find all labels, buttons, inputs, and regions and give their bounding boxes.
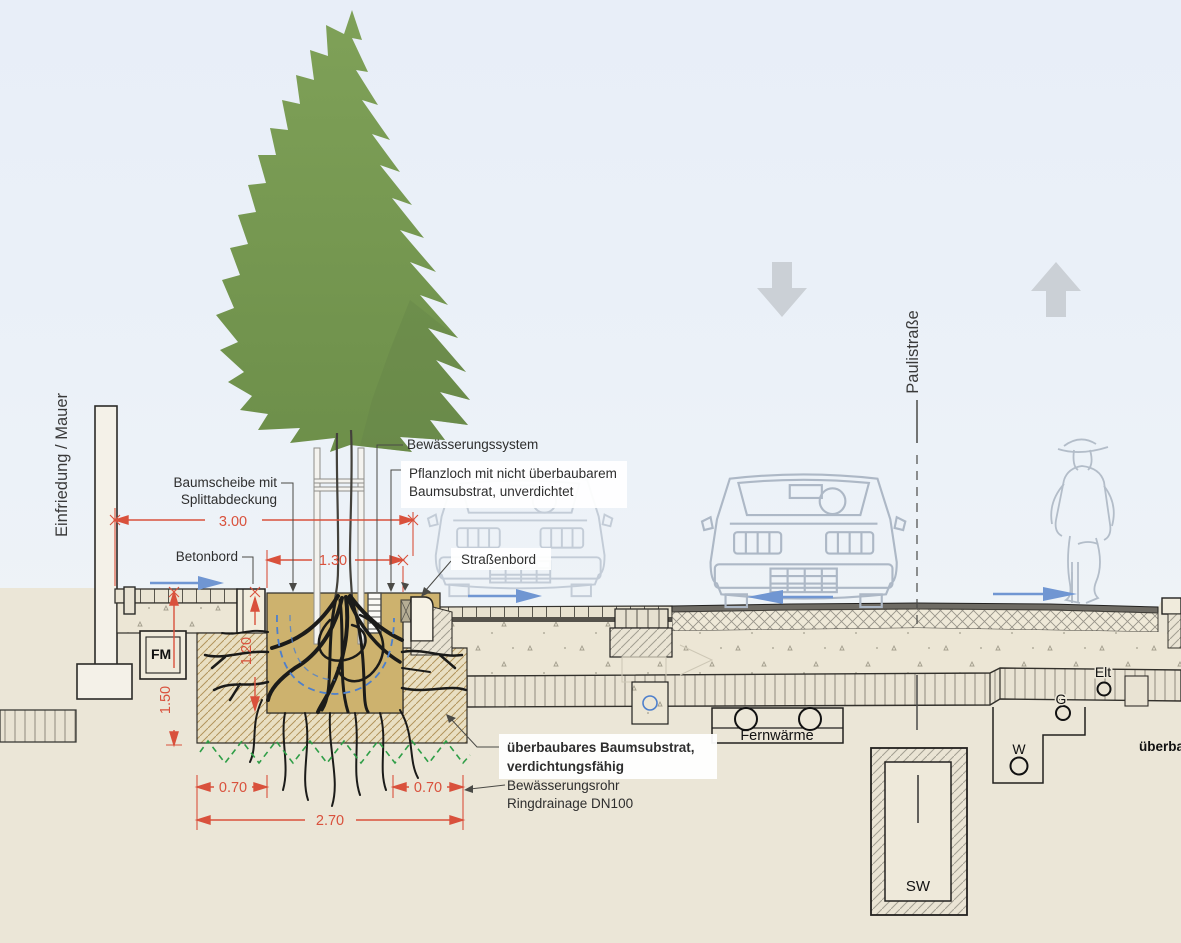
pflanzloch-label-line2: Baumsubstrat, unverdichtet [409, 484, 574, 499]
dim-depth-pit: 1.20 [239, 637, 255, 665]
fernwaerme-label: Fernwärme [740, 728, 813, 744]
dim-substrate-width: 2.70 [316, 813, 344, 829]
w-label: W [1012, 741, 1026, 757]
heating-pipe-right [799, 708, 821, 730]
baumscheibe-label-line2: Splittabdeckung [181, 492, 277, 507]
heating-pipe-left [735, 708, 757, 730]
dim-offset-right: 0.70 [414, 780, 442, 796]
drainage-label-line2: Ringdrainage DN100 [507, 796, 633, 811]
betonbord-label: Betonbord [176, 549, 238, 564]
street-cross-section-diagram: FM Fernwärme W G Elt SW überba [0, 0, 1181, 943]
dim-total-width: 3.00 [219, 514, 247, 530]
irrigation-system-label: Bewässerungssystem [407, 437, 538, 452]
left-utility-duct-strip [0, 710, 76, 742]
diagram-canvas: FM Fernwärme W G Elt SW überba [0, 0, 1181, 943]
baumscheibe-label-line1: Baumscheibe mit [173, 475, 277, 490]
dim-offset-left: 0.70 [219, 780, 247, 796]
sky-background [0, 0, 1181, 620]
g-label: G [1056, 691, 1067, 707]
street-name-label: Paulistraße [904, 310, 922, 393]
pipe-shaft [632, 682, 668, 724]
ueberbaubar-label-line1: überbaubares Baumsubstrat, [507, 740, 695, 755]
ueberbaubar-label: überbaubares Baumsubstrat, verdichtungsf… [499, 734, 717, 779]
dim-pit-width: 1.30 [319, 553, 347, 569]
elt-pipe [1098, 683, 1111, 696]
drainage-label-line1: Bewässerungsrohr [507, 778, 620, 793]
fm-label: FM [151, 646, 171, 662]
elt-label: Elt [1095, 664, 1111, 680]
gas-pipe [1056, 706, 1070, 720]
sw-label: SW [906, 878, 931, 895]
pflanzloch-label-line1: Pflanzloch mit nicht überbaubarem [409, 466, 617, 481]
dim-depth-total: 1.50 [158, 686, 174, 714]
strassenbord-label: Straßenbord [451, 548, 551, 570]
ueberbaubar-cut-label: überba [1139, 739, 1181, 754]
road-layers [433, 603, 1181, 707]
fence-wall-label: Einfriedung / Mauer [53, 392, 71, 537]
ueberbaubar-label-line2: verdichtungsfähig [507, 759, 624, 774]
strassenbord-label-text: Straßenbord [461, 552, 536, 567]
pflanzloch-label: Pflanzloch mit nicht überbaubarem Baumsu… [401, 461, 627, 508]
